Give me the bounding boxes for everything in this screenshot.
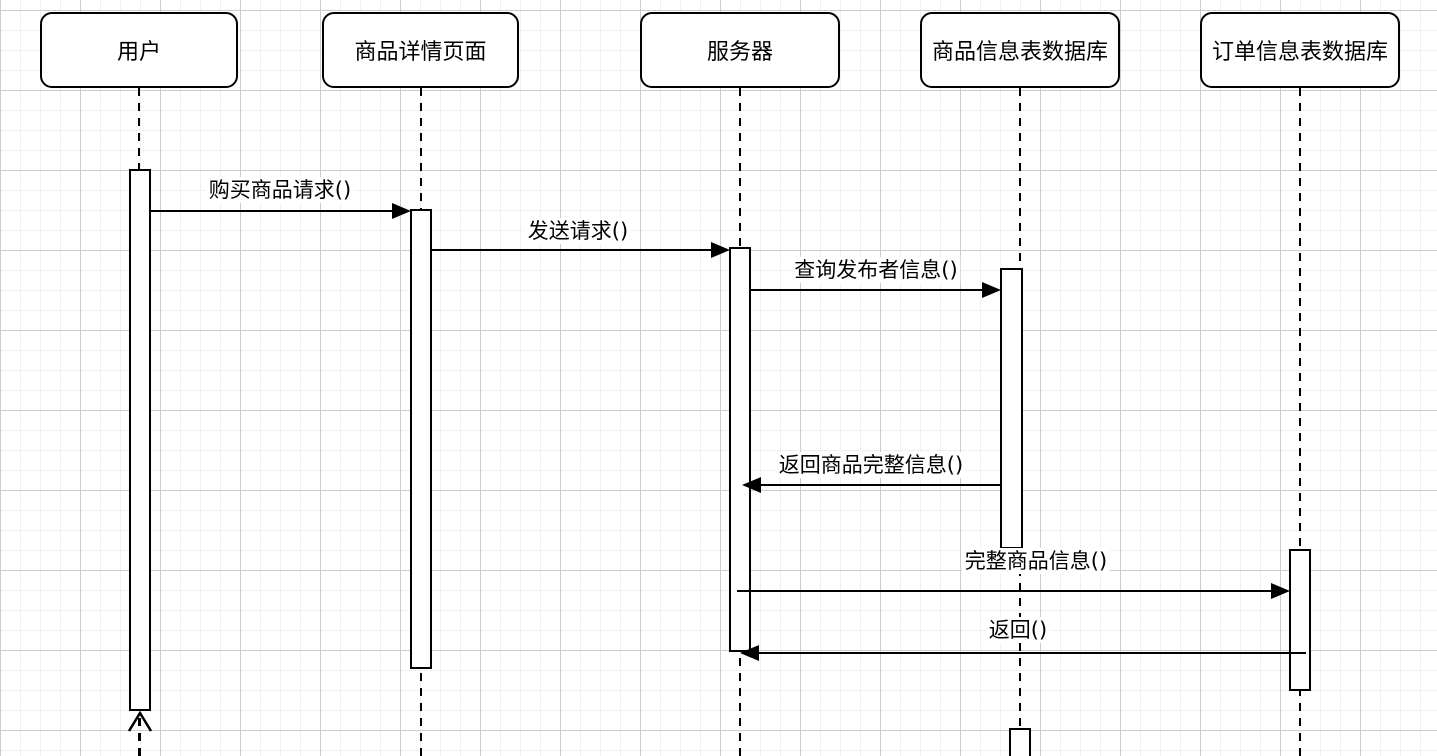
message-arrowhead-query-publisher [982, 282, 1001, 298]
message-label-full-product-info[interactable]: 完整商品信息() [962, 548, 1110, 574]
actor-server[interactable]: 服务器 [640, 12, 840, 88]
message-label-send-request[interactable]: 发送请求() [525, 218, 631, 244]
actor-order-info-db[interactable]: 订单信息表数据库 [1200, 12, 1400, 88]
message-arrowhead-full-product-info [1271, 583, 1290, 599]
message-label-return[interactable]: 返回() [986, 617, 1050, 643]
actor-product-info-db[interactable]: 商品信息表数据库 [920, 12, 1120, 88]
message-label-query-publisher[interactable]: 查询发布者信息() [791, 257, 960, 283]
actor-product-page[interactable]: 商品详情页面 [322, 12, 519, 88]
activation-product-info-db-2[interactable] [1010, 729, 1030, 756]
message-label-return-full-info[interactable]: 返回商品完整信息() [776, 452, 966, 478]
activation-product-page[interactable] [411, 210, 431, 668]
message-label-buy-request[interactable]: 购买商品请求() [206, 177, 354, 203]
activation-order-info-db[interactable] [1290, 550, 1310, 690]
diagram-wires-layer [0, 0, 1437, 756]
actor-user[interactable]: 用户 [40, 12, 238, 88]
activation-user[interactable] [130, 170, 150, 710]
message-arrowhead-buy-request [392, 203, 411, 219]
diagram-canvas: 用户 商品详情页面 服务器 商品信息表数据库 订单信息表数据库 购买商品请求()… [0, 0, 1437, 756]
activation-product-info-db[interactable] [1001, 269, 1022, 548]
message-arrowhead-send-request [711, 242, 730, 258]
